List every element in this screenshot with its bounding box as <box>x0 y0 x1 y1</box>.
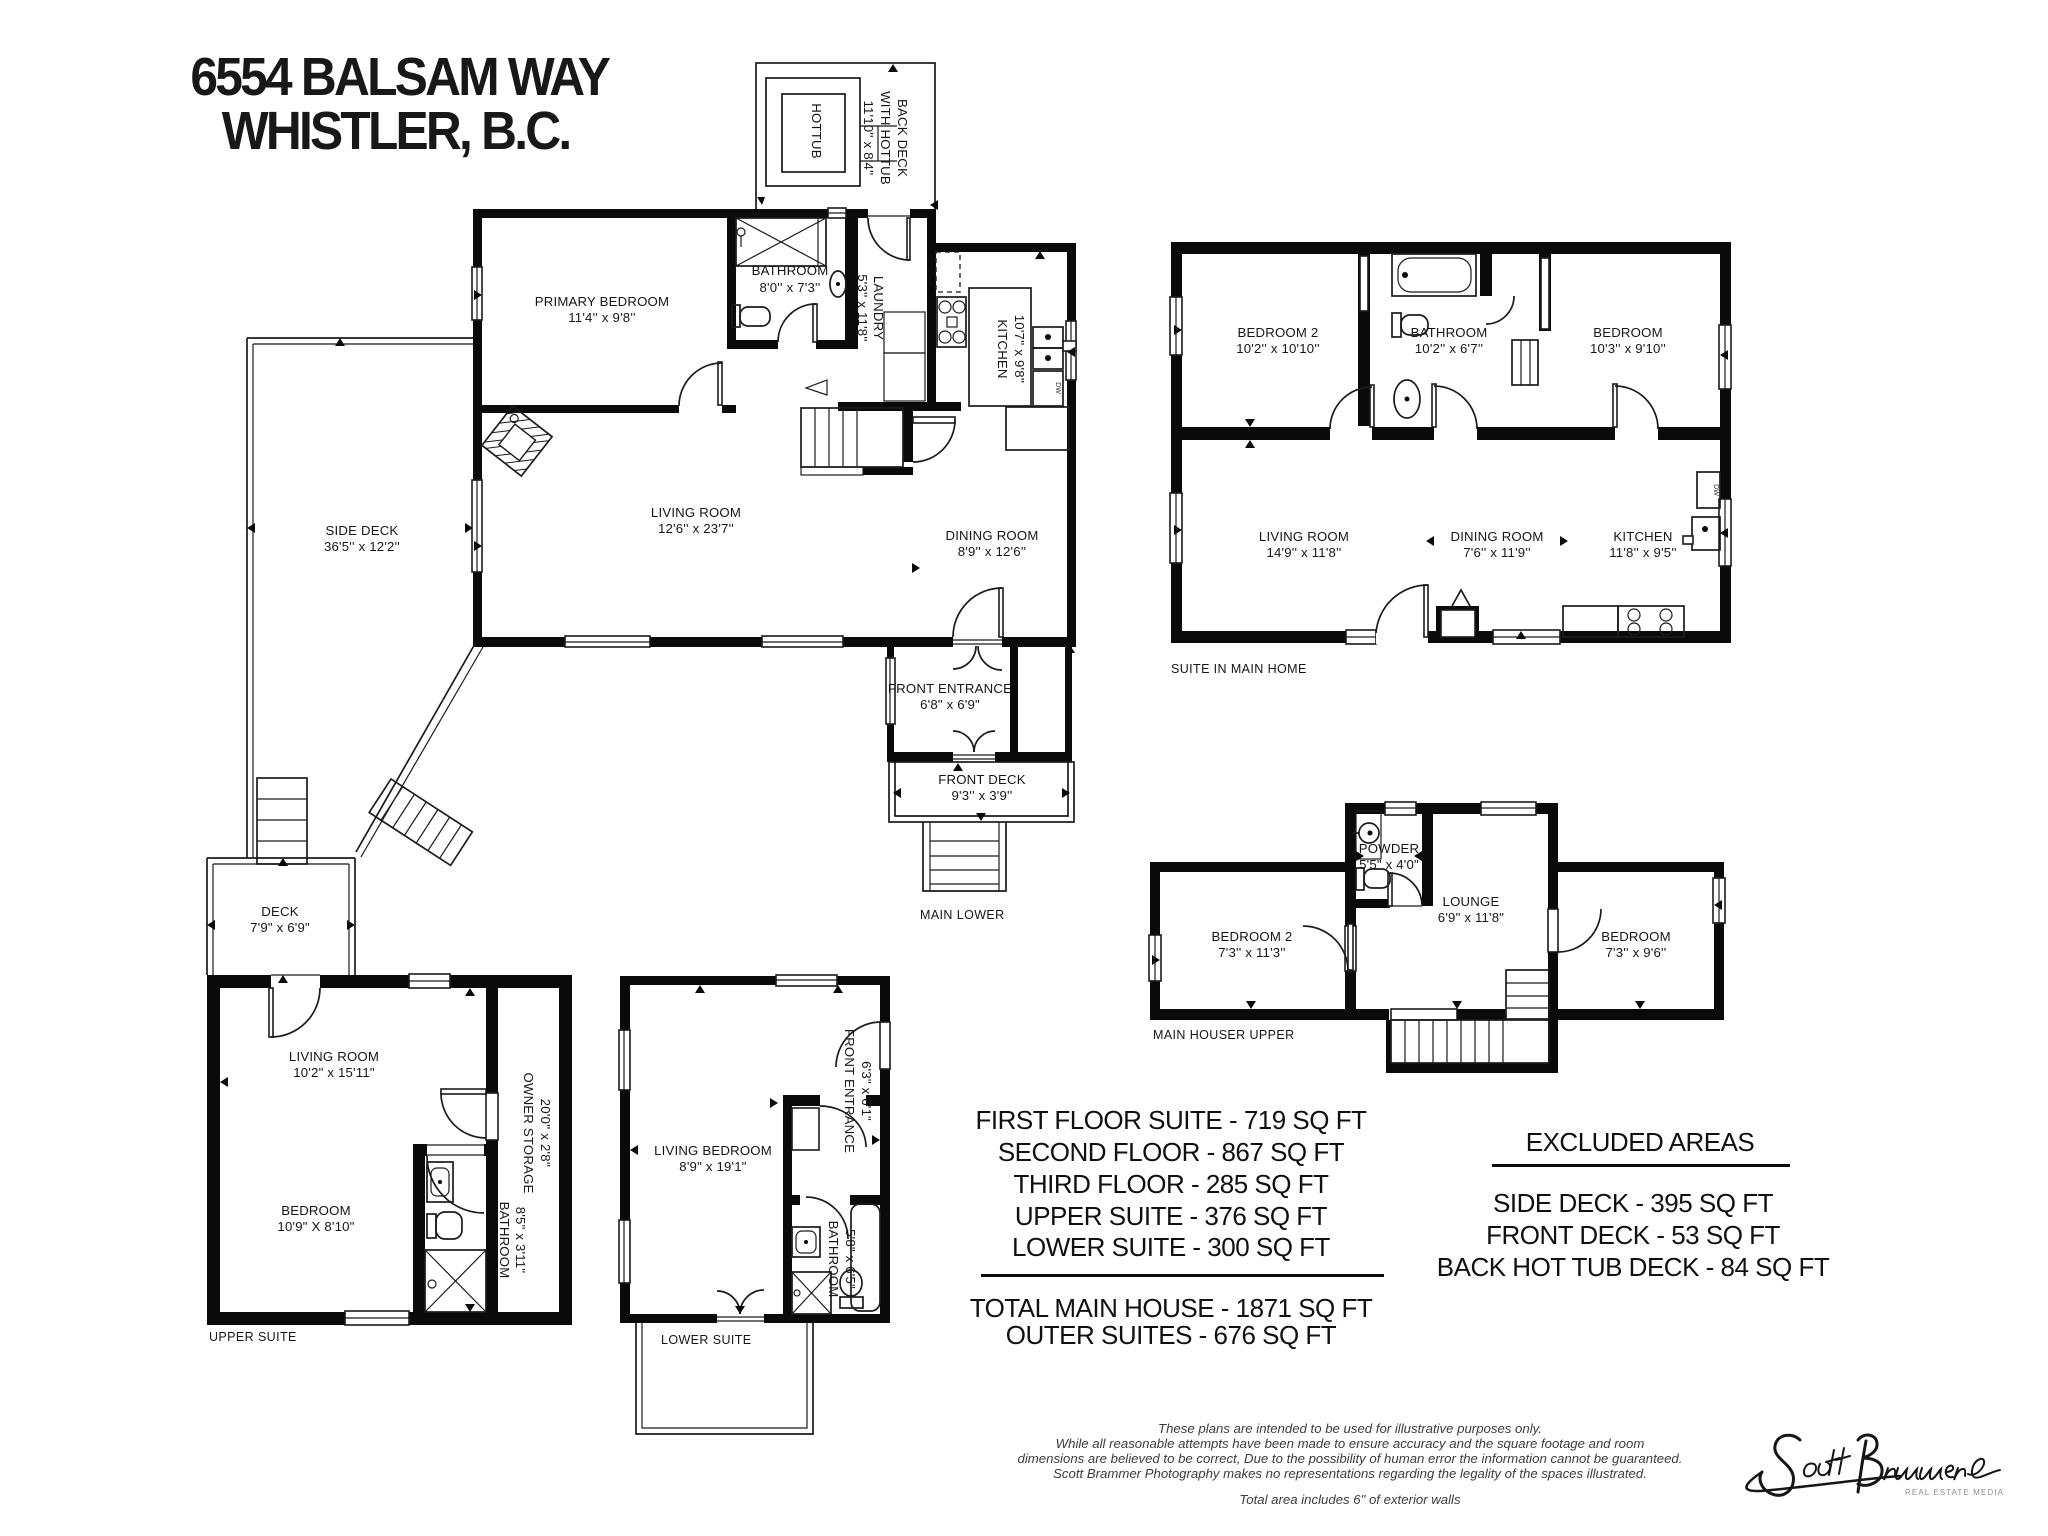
svg-text:6'9" x 11'8": 6'9" x 11'8" <box>1438 910 1505 925</box>
svg-text:UPPER SUITE - 376 SQ FT: UPPER SUITE - 376 SQ FT <box>1015 1201 1328 1231</box>
svg-text:These plans are intended to be: These plans are intended to be used for … <box>1158 1421 1542 1436</box>
svg-text:BEDROOM 2: BEDROOM 2 <box>1238 325 1319 340</box>
svg-text:11'8'' x 9'5'': 11'8'' x 9'5'' <box>1609 545 1677 560</box>
svg-text:FRONT ENTRANCE: FRONT ENTRANCE <box>842 1029 857 1153</box>
svg-text:While all reasonable attempts: While all reasonable attempts have been … <box>1056 1436 1645 1451</box>
svg-text:6'8" x 6'9": 6'8" x 6'9" <box>920 697 980 712</box>
svg-text:LIVING ROOM: LIVING ROOM <box>651 505 741 520</box>
svg-text:BEDROOM: BEDROOM <box>1601 929 1671 944</box>
svg-text:DW: DW <box>1712 484 1719 496</box>
svg-text:LOWER SUITE: LOWER SUITE <box>661 1333 752 1347</box>
svg-text:7'3'' x 9'6'': 7'3'' x 9'6'' <box>1606 945 1667 960</box>
svg-text:LOWER SUITE - 300 SQ FT: LOWER SUITE - 300 SQ FT <box>1012 1232 1331 1262</box>
svg-text:SIDE DECK: SIDE DECK <box>326 523 399 538</box>
svg-text:LOUNGE: LOUNGE <box>1443 894 1500 909</box>
svg-text:7'3'' x 11'3'': 7'3'' x 11'3'' <box>1218 945 1286 960</box>
svg-text:dimensions are believed to be: dimensions are believed to be correct, D… <box>1018 1451 1683 1466</box>
svg-text:FRONT DECK - 53 SQ FT: FRONT DECK - 53 SQ FT <box>1486 1220 1780 1250</box>
svg-text:10'2" x 15'11": 10'2" x 15'11" <box>293 1065 375 1080</box>
svg-text:DECK: DECK <box>261 904 298 919</box>
svg-text:10'7'' x 9'8'': 10'7'' x 9'8'' <box>1012 315 1027 384</box>
svg-text:11'4'' x 9'8'': 11'4'' x 9'8'' <box>568 310 636 325</box>
svg-text:8'9'' x 12'6'': 8'9'' x 12'6'' <box>958 544 1027 559</box>
svg-text:LIVING BEDROOM: LIVING BEDROOM <box>654 1143 772 1158</box>
svg-text:TOTAL MAIN HOUSE - 1871 SQ FT: TOTAL MAIN HOUSE - 1871 SQ FT <box>970 1293 1373 1323</box>
svg-text:7'6'' x 11'9'': 7'6'' x 11'9'' <box>1463 545 1531 560</box>
svg-text:6'3" x 6'1": 6'3" x 6'1" <box>859 1061 874 1121</box>
svg-text:5'3'' x 11'8'': 5'3'' x 11'8'' <box>855 274 870 342</box>
svg-text:SECOND FLOOR - 867 SQ FT: SECOND FLOOR - 867 SQ FT <box>998 1137 1345 1167</box>
svg-text:BATHROOM: BATHROOM <box>1411 325 1488 340</box>
svg-text:Scott Brammer Photography make: Scott Brammer Photography makes no repre… <box>1053 1466 1647 1481</box>
svg-text:DW: DW <box>1054 382 1061 394</box>
svg-text:BACK DECK: BACK DECK <box>895 99 910 177</box>
svg-text:KITCHEN: KITCHEN <box>1613 529 1672 544</box>
svg-text:WITH HOTTUB: WITH HOTTUB <box>878 91 893 185</box>
svg-text:8'0'' x 7'3'': 8'0'' x 7'3'' <box>760 280 821 295</box>
svg-text:14'9'' x 11'8'': 14'9'' x 11'8'' <box>1266 545 1341 560</box>
svg-text:12'6'' x 23'7'': 12'6'' x 23'7'' <box>658 521 734 536</box>
svg-text:THIRD FLOOR - 285 SQ FT: THIRD FLOOR - 285 SQ FT <box>1014 1169 1330 1199</box>
svg-text:10'9" X 8'10": 10'9" X 8'10" <box>277 1219 354 1234</box>
svg-text:FIRST FLOOR SUITE - 719 SQ FT: FIRST FLOOR SUITE - 719 SQ FT <box>976 1105 1368 1135</box>
svg-text:MAIN HOUSER UPPER: MAIN HOUSER UPPER <box>1153 1028 1295 1042</box>
svg-text:FRONT DECK: FRONT DECK <box>938 772 1025 787</box>
svg-text:10'2'' x 6'7'': 10'2'' x 6'7'' <box>1415 341 1484 356</box>
svg-text:BEDROOM 2: BEDROOM 2 <box>1212 929 1293 944</box>
svg-text:HOTTUB: HOTTUB <box>809 103 824 158</box>
svg-text:REAL ESTATE MEDIA: REAL ESTATE MEDIA <box>1905 1488 2004 1497</box>
svg-text:OUTER SUITES - 676 SQ FT: OUTER SUITES - 676 SQ FT <box>1006 1320 1337 1350</box>
svg-text:5'5" x 4'0": 5'5" x 4'0" <box>1359 857 1419 872</box>
svg-text:WHISTLER, B.C.: WHISTLER, B.C. <box>222 100 570 160</box>
svg-text:BEDROOM: BEDROOM <box>281 1203 351 1218</box>
svg-text:LIVING ROOM: LIVING ROOM <box>289 1049 379 1064</box>
svg-text:7'9" x 6'9": 7'9" x 6'9" <box>250 920 310 935</box>
svg-text:8'9" x 19'1": 8'9" x 19'1" <box>679 1159 747 1174</box>
svg-text:5'8" x 6'5": 5'8" x 6'5" <box>843 1229 858 1289</box>
svg-text:DINING ROOM: DINING ROOM <box>945 528 1038 543</box>
svg-text:UPPER SUITE: UPPER SUITE <box>209 1330 297 1344</box>
svg-text:SUITE IN MAIN HOME: SUITE IN MAIN HOME <box>1171 662 1307 676</box>
svg-text:KITCHEN: KITCHEN <box>995 319 1010 378</box>
svg-text:FRONT ENTRANCE: FRONT ENTRANCE <box>888 681 1012 696</box>
svg-text:POWDER: POWDER <box>1359 841 1420 856</box>
svg-text:8'5" x 3'11": 8'5" x 3'11" <box>513 1207 528 1274</box>
svg-text:BACK HOT TUB DECK - 84 SQ FT: BACK HOT TUB DECK - 84 SQ FT <box>1437 1252 1830 1282</box>
svg-text:SIDE DECK - 395 SQ FT: SIDE DECK - 395 SQ FT <box>1493 1188 1774 1218</box>
svg-text:BATHROOM: BATHROOM <box>497 1202 512 1279</box>
svg-text:MAIN LOWER: MAIN LOWER <box>920 908 1005 922</box>
svg-text:11'10'' x 8'4'': 11'10'' x 8'4'' <box>861 100 876 175</box>
svg-text:BATHROOM: BATHROOM <box>752 263 829 278</box>
svg-text:10'3'' x 9'10'': 10'3'' x 9'10'' <box>1590 341 1666 356</box>
svg-text:9'3'' x 3'9'': 9'3'' x 3'9'' <box>952 788 1013 803</box>
svg-text:6554 BALSAM WAY: 6554 BALSAM WAY <box>190 46 610 106</box>
svg-text:PRIMARY BEDROOM: PRIMARY BEDROOM <box>535 294 669 309</box>
svg-text:BATHROOM: BATHROOM <box>826 1221 841 1298</box>
svg-text:BEDROOM: BEDROOM <box>1593 325 1663 340</box>
svg-text:DINING ROOM: DINING ROOM <box>1450 529 1543 544</box>
svg-text:10'2'' x 10'10'': 10'2'' x 10'10'' <box>1236 341 1320 356</box>
svg-text:LIVING ROOM: LIVING ROOM <box>1259 529 1349 544</box>
svg-text:Total area includes 6" of exte: Total area includes 6" of exterior walls <box>1239 1492 1461 1507</box>
svg-text:36'5'' x 12'2'': 36'5'' x 12'2'' <box>324 539 400 554</box>
svg-text:20'0'' x 2'8'': 20'0'' x 2'8'' <box>538 1099 553 1168</box>
svg-text:OWNER STORAGE: OWNER STORAGE <box>521 1072 536 1193</box>
svg-text:EXCLUDED AREAS: EXCLUDED AREAS <box>1526 1127 1755 1157</box>
